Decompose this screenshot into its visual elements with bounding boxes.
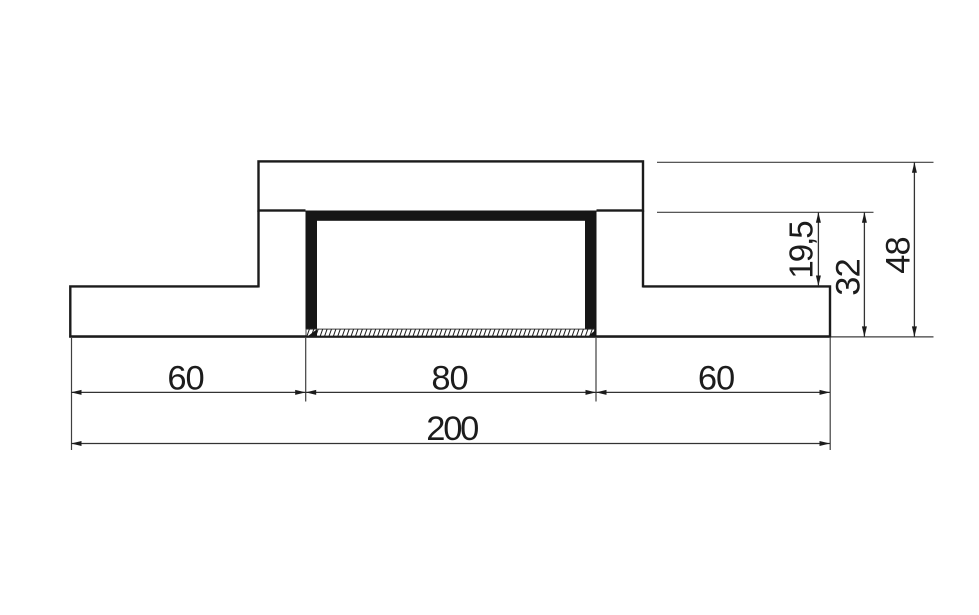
svg-text:60: 60 [698, 360, 734, 398]
svg-text:200: 200 [426, 410, 478, 448]
svg-text:60: 60 [167, 360, 203, 398]
svg-text:80: 80 [431, 360, 467, 398]
svg-text:19,5: 19,5 [783, 222, 820, 279]
svg-text:32: 32 [830, 259, 868, 295]
svg-text:48: 48 [880, 237, 918, 273]
